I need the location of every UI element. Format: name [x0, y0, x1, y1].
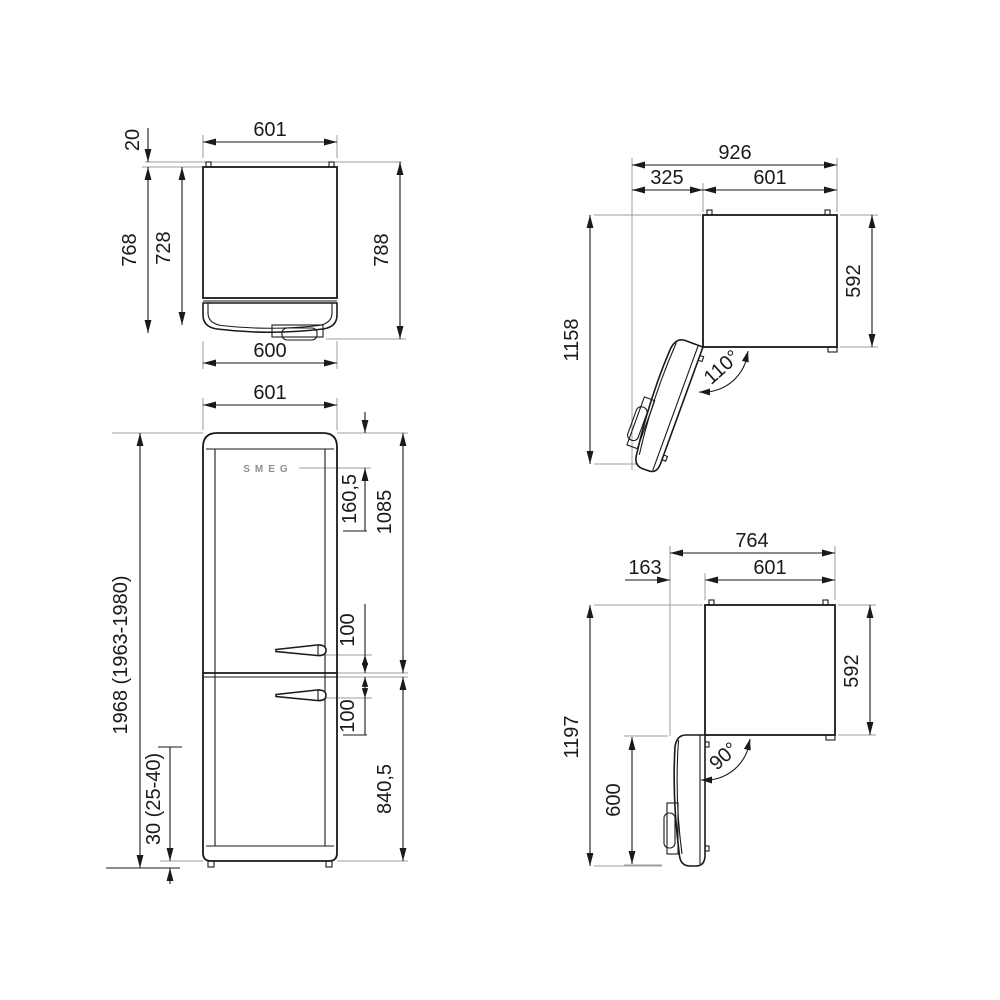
door-open-90	[664, 735, 709, 866]
dim-depth-768: 768	[119, 233, 141, 266]
view-top-open-90: 764 163 601 1197 592 600 90°	[561, 530, 876, 866]
arc-arrow	[744, 738, 753, 750]
cabinet-body-top-view	[705, 605, 835, 735]
dim-upper-1085: 1085	[374, 490, 396, 535]
dim-total-926: 926	[718, 142, 751, 164]
dim-clearance-163: 163	[628, 557, 661, 579]
dim-door-600: 600	[603, 783, 625, 816]
view-top-open-110: 926 325 601 1158 592 110°	[561, 142, 878, 475]
dim-rear-20: 20	[122, 129, 144, 151]
dim-depth-728: 728	[153, 231, 175, 264]
dim-total-764: 764	[735, 530, 768, 552]
arc-arrow	[742, 350, 751, 362]
dim-angle-110: 110°	[700, 346, 744, 389]
handle-grip	[664, 813, 675, 848]
dim-front-601: 601	[253, 382, 286, 404]
dim-depth-592: 592	[843, 264, 865, 297]
dim-width-601: 601	[753, 557, 786, 579]
dim-depth-open-1197: 1197	[561, 715, 583, 758]
dim-lower-840-5: 840,5	[374, 764, 396, 814]
view-front: SMEG 601 160,5 1085 100 100 840,5 1968 (…	[106, 382, 408, 884]
dim-plinth-30: 30 (25-40)	[143, 753, 165, 845]
smeg-logo: SMEG	[243, 464, 292, 475]
dim-total-1968: 1968 (1963-1980)	[110, 575, 132, 734]
dimension-drawing-page: 601 20 768 728 788 600 SMEG	[0, 0, 1000, 1000]
dim-angle-90: 90°	[705, 738, 742, 775]
view-top-closed: 601 20 768 728 788 600	[119, 119, 406, 369]
dim-door-600: 600	[253, 340, 286, 362]
arc-arrow	[699, 389, 710, 396]
dim-depth-592: 592	[841, 654, 863, 687]
technical-drawing: 601 20 768 728 788 600 SMEG	[0, 0, 1000, 1000]
dim-width-601: 601	[753, 167, 786, 189]
dim-swing-325: 325	[650, 167, 683, 189]
dim-logo-160-5: 160,5	[339, 474, 361, 524]
dim-width-601: 601	[253, 119, 286, 141]
dim-handle-l-100: 100	[337, 699, 359, 732]
cabinet-body-top-view	[203, 167, 337, 298]
cabinet-body-top-view	[703, 215, 837, 347]
dim-depth-open-1158: 1158	[561, 318, 583, 361]
dim-handle-u-100: 100	[337, 613, 359, 646]
dim-depth-788: 788	[371, 233, 393, 266]
